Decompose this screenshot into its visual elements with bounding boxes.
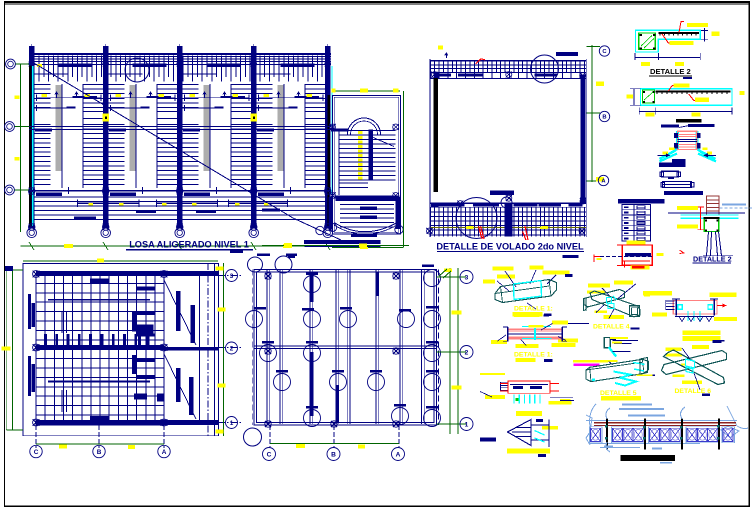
svg-text:B: B xyxy=(331,451,336,458)
svg-text:DETALLE 1:: DETALLE 1: xyxy=(514,352,553,359)
svg-text:1: 1 xyxy=(230,420,234,427)
svg-text:DETALLE 5: DETALLE 5 xyxy=(600,390,637,397)
svg-text:C: C xyxy=(267,451,272,458)
svg-text:LOSA ALIGERADO NIVEL 1: LOSA ALIGERADO NIVEL 1 xyxy=(129,240,249,250)
svg-text:DETALLE 2: DETALLE 2 xyxy=(650,67,691,76)
svg-text:DETALLE 1:: DETALLE 1: xyxy=(514,306,553,313)
svg-text:2: 2 xyxy=(465,349,469,356)
svg-text:C: C xyxy=(34,449,39,456)
svg-text:DETALLE DE VOLADO 2do NIVEL: DETALLE DE VOLADO 2do NIVEL xyxy=(436,241,584,251)
svg-text:2: 2 xyxy=(230,345,234,352)
svg-text:DETALLE 2: DETALLE 2 xyxy=(693,254,732,263)
svg-text:A: A xyxy=(162,449,167,456)
svg-text:1: 1 xyxy=(465,421,469,428)
svg-text:B: B xyxy=(602,115,606,121)
svg-text:3: 3 xyxy=(465,274,469,281)
svg-text:B: B xyxy=(97,449,102,456)
svg-text:DETALLE 4: DETALLE 4 xyxy=(593,324,630,331)
svg-text:A: A xyxy=(396,451,401,458)
svg-text:3: 3 xyxy=(230,273,234,280)
